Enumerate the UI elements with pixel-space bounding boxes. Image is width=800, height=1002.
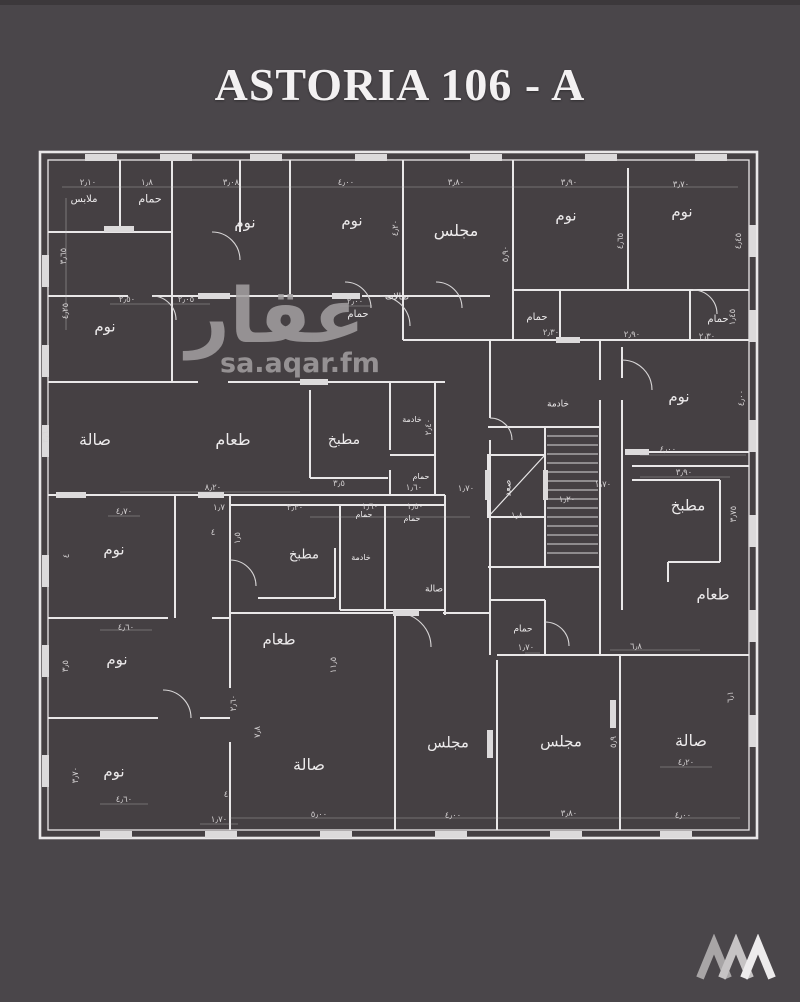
- room-label: نوم: [234, 216, 255, 231]
- dimension-label: ٣٫٧٠: [72, 767, 81, 783]
- dimension-label: ٤: [224, 791, 229, 800]
- dimension-label: ٣٫٧٥: [730, 506, 739, 522]
- room-label: حمام: [413, 473, 430, 481]
- dimension-label: ٤٫٠٠: [338, 179, 354, 188]
- zigzag-mountains-logo-icon: [694, 934, 790, 986]
- dimension-label: ٣٫٦: [42, 431, 51, 443]
- dimension-label: ١١٫٥: [330, 657, 339, 673]
- dimension-label: ٤٫٠٠: [675, 812, 691, 821]
- room-label: صعد: [505, 480, 514, 497]
- room-label: خادمة: [402, 416, 422, 424]
- dimension-label: ٤٫٧٠: [116, 508, 132, 517]
- dimension-label: ٢٫٤٠: [425, 419, 434, 435]
- room-label: مطبخ: [671, 499, 706, 514]
- room-label: نوم: [94, 320, 115, 335]
- dimension-label: ٤٫٠٠: [445, 812, 461, 821]
- dimension-label: ٤: [211, 529, 216, 538]
- dimension-label: ١٫٧: [213, 504, 225, 513]
- dimension-label: ١٫٧٠: [595, 481, 611, 490]
- room-label: حمام: [356, 511, 373, 519]
- room-label: صالة: [675, 733, 707, 749]
- dimension-label: ٣٫٥: [333, 480, 345, 489]
- room-label: طعام: [215, 432, 250, 448]
- dimension-label: ٧٫٨: [254, 726, 263, 738]
- dimension-label: ٣٫٥: [62, 660, 71, 672]
- dimension-label: ٢٫٥٠: [119, 296, 135, 305]
- dimension-label: ٣٫٨٠: [448, 179, 464, 188]
- dimension-label: ١٫٤٥: [729, 309, 738, 325]
- dimension-label: ٦٫٨: [630, 643, 642, 652]
- room-label: مطبخ: [328, 433, 360, 447]
- dimension-label: ٤٫٠٠: [660, 446, 676, 455]
- room-label: نوم: [671, 205, 692, 220]
- dimension-label: ٢٫٦٠: [230, 695, 239, 711]
- room-label: خادمة: [351, 554, 371, 562]
- dimension-label: ٣٫٨٠: [561, 810, 577, 819]
- room-label: صالات: [385, 294, 409, 303]
- dimension-label: ٤٫٢٠: [392, 220, 401, 236]
- room-label: نوم: [555, 209, 576, 224]
- room-label: صالة: [425, 586, 443, 595]
- dimension-label: ١٫٥: [234, 532, 243, 544]
- dimension-label: ٤٫٠٠: [738, 390, 747, 406]
- room-label: طعام: [696, 588, 729, 603]
- floor-plan-page: ASTORIA 106 - A: [0, 0, 800, 1002]
- dimension-label: ٥٫٠٠: [311, 811, 327, 820]
- dimension-label: ٢٫٣٠: [543, 329, 559, 338]
- dimension-label: ١٫٧٠: [211, 816, 227, 825]
- dimension-label: ١٫٨: [511, 512, 523, 521]
- room-label: نوم: [103, 543, 124, 558]
- room-label: صالة: [79, 432, 111, 448]
- dimension-label: ١٫٥٠: [407, 503, 423, 512]
- watermark: عقار sa.aqar.fm: [186, 280, 380, 379]
- room-label: نوم: [668, 390, 689, 405]
- dimension-label: ٣٫٩٠: [676, 469, 692, 478]
- dimension-label: ٢٫١٠: [80, 179, 96, 188]
- dimension-label: ٣٫٣٠: [287, 504, 303, 513]
- room-label: خادمة: [547, 401, 569, 410]
- dimension-label: ٣٫٧٠: [673, 181, 689, 190]
- room-label: حمام: [138, 194, 161, 205]
- room-label: مطبخ: [289, 549, 319, 562]
- room-label: نوم: [341, 214, 362, 229]
- room-label: حمام: [404, 515, 421, 523]
- dimension-label: ١٫٧٠: [518, 644, 534, 653]
- dimension-label: ٤٫٢٠: [678, 759, 694, 768]
- dimension-label: ٥٫٩: [610, 736, 619, 748]
- dimension-label: ١٫٢٠: [559, 496, 575, 505]
- dimension-label: ٣٫٦٥: [60, 248, 69, 264]
- floor-plan: ملابسحمامنومنوممجلسنومنومنومحمامصالاتحما…: [0, 0, 800, 1002]
- dimension-label: ٥٫٩٠: [502, 246, 511, 262]
- room-label: مجلس: [427, 736, 469, 751]
- dimension-label: ١٫٨: [141, 179, 153, 188]
- room-label: صالة: [293, 757, 325, 773]
- room-label: ملابس: [71, 195, 98, 205]
- dimension-label: ١٫٦٠: [406, 484, 422, 493]
- room-label: حمام: [513, 626, 532, 635]
- room-label: مجلس: [540, 735, 582, 750]
- dimension-label: ٢٫٣٠: [699, 333, 715, 342]
- dimension-label: ٤٫٦٥: [617, 233, 626, 249]
- room-label: نوم: [103, 765, 124, 780]
- dimension-label: ٣٫٠٨: [223, 179, 239, 188]
- watermark-domain-text: sa.aqar.fm: [220, 348, 380, 379]
- room-label: حمام: [707, 315, 728, 325]
- plan-labels: ملابسحمامنومنوممجلسنومنومنومحمامصالاتحما…: [0, 0, 800, 1002]
- dimension-label: ٣٫٩٠: [561, 179, 577, 188]
- dimension-label: ٤٫٤٥: [735, 233, 744, 249]
- room-label: طعام: [262, 633, 295, 648]
- dimension-label: ٤٫٦٠: [116, 796, 132, 805]
- room-label: مجلس: [434, 223, 479, 239]
- dimension-label: ٤٫٢٥: [62, 303, 71, 319]
- dimension-label: ٤: [63, 554, 72, 559]
- dimension-label: ٤٫٦٠: [118, 624, 134, 633]
- dimension-label: ١٫٧٠: [458, 485, 474, 494]
- dimension-label: ٨٫٢٠: [205, 484, 221, 493]
- dimension-label: ١٫٦٠: [362, 503, 378, 512]
- room-label: نوم: [106, 653, 127, 668]
- room-label: حمام: [526, 313, 547, 323]
- dimension-label: ٦٫١: [727, 691, 736, 703]
- watermark-arabic-text: عقار: [186, 280, 380, 352]
- dimension-label: ٢٫٩٠: [624, 331, 640, 340]
